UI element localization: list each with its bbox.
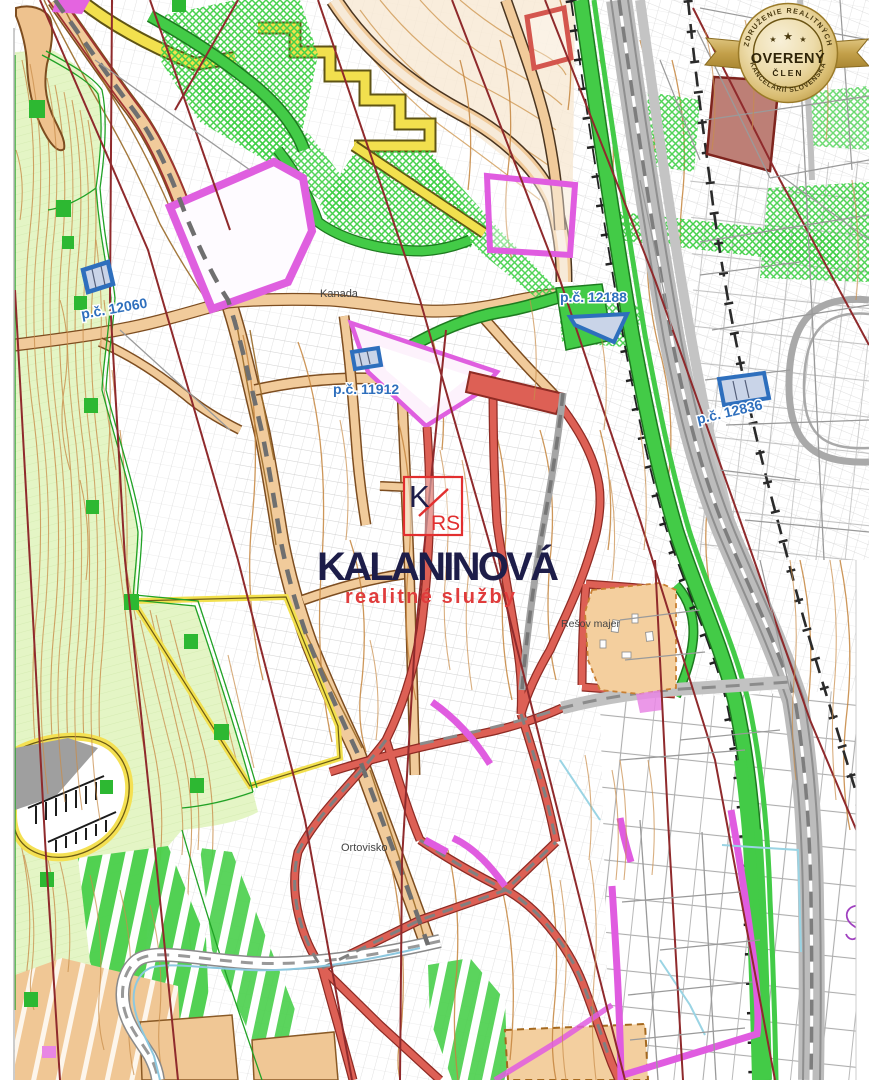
- svg-text:Rešov majer: Rešov majer: [561, 618, 620, 630]
- svg-text:Ortovisko: Ortovisko: [341, 842, 387, 854]
- svg-text:★: ★: [799, 35, 806, 44]
- svg-text:RS: RS: [431, 512, 460, 535]
- svg-text:p.č. 11912: p.č. 11912: [333, 381, 399, 397]
- svg-text:KALANINOVÁ: KALANINOVÁ: [317, 544, 559, 589]
- svg-text:OVERENÝ: OVERENÝ: [751, 49, 825, 67]
- svg-text:Kanada: Kanada: [320, 288, 359, 300]
- svg-text:★: ★: [783, 31, 793, 43]
- svg-text:realitné služby: realitné služby: [345, 586, 517, 608]
- svg-text:p.č. 12188: p.č. 12188: [560, 289, 627, 305]
- svg-text:★: ★: [769, 35, 776, 44]
- svg-text:K: K: [409, 479, 430, 514]
- svg-text:ČLEN: ČLEN: [772, 67, 803, 78]
